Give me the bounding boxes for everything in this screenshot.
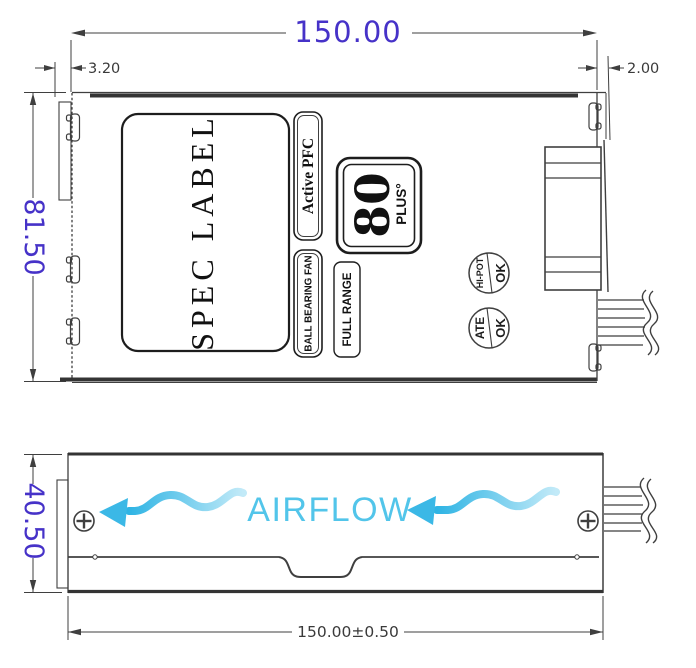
spec-label-text: SPEC LABEL	[184, 113, 220, 351]
wire-bundle-top	[598, 290, 659, 355]
stamp-hipot-ok-text: OK	[493, 263, 508, 283]
dimension-side-height: 40.50	[18, 455, 62, 593]
top-view: 150.00 3.20 2.00	[18, 15, 659, 383]
arrow-right-icon	[586, 65, 597, 71]
seam-nub	[93, 555, 97, 559]
airflow-wave-left	[129, 492, 243, 511]
connector-cover-edge	[604, 140, 608, 292]
active-pfc-text: Active PFC	[300, 138, 317, 214]
arrow-left-icon	[71, 65, 82, 71]
screw-right	[578, 511, 598, 531]
arrow-right-icon	[583, 30, 597, 37]
clip	[67, 256, 80, 283]
dim-right-offset-value: 2.00	[627, 61, 659, 77]
arrow-up-icon	[30, 93, 36, 105]
clip	[589, 103, 601, 130]
psu-outline-drawing: 150.00 3.20 2.00	[0, 0, 696, 668]
arrow-right-icon	[590, 629, 603, 635]
stamp-ate-ok: ATE OK	[469, 308, 509, 348]
airflow-annotation: AIRFLOW	[99, 491, 556, 529]
seam-nub	[575, 555, 579, 559]
dim-top-width-value: 150.00	[294, 15, 401, 49]
side-view: 40.50	[18, 453, 657, 641]
active-pfc-badge: Active PFC	[294, 112, 322, 240]
full-range-badge: FULL RANGE	[334, 262, 360, 357]
arrow-down-icon	[30, 369, 36, 381]
dimension-bottom-width: 150.00±0.50	[68, 596, 603, 641]
chassis-top-view: SPEC LABEL Active PFC BALL BEARING FAN	[59, 93, 659, 383]
arrow-up-icon	[30, 455, 36, 467]
dimension-top-width: 150.00	[71, 15, 597, 92]
drawing-canvas: 150.00 3.20 2.00	[0, 0, 696, 668]
dim-body-depth-value: 81.50	[18, 198, 49, 275]
airflow-wave-right	[437, 491, 556, 510]
full-range-text: FULL RANGE	[342, 272, 354, 346]
stamp-hipot-text: HI-POT	[475, 257, 485, 288]
ball-bearing-fan-badge: BALL BEARING FAN	[294, 250, 322, 357]
arrow-right-icon	[44, 65, 55, 71]
stamp-ate-ok-text: OK	[493, 318, 508, 338]
arrow-left-icon	[68, 629, 81, 635]
arrow-left-icon	[71, 30, 85, 37]
ac-connector-block	[545, 140, 608, 292]
screw-left	[74, 511, 94, 531]
chassis-side-view: AIRFLOW	[57, 453, 657, 593]
airflow-arrowhead-icon	[99, 498, 128, 527]
clip	[67, 114, 80, 141]
handle-recess	[279, 557, 362, 577]
arrow-down-icon	[30, 580, 36, 592]
wire-bundle-side	[604, 478, 657, 543]
dim-side-height-value: 40.50	[18, 482, 49, 559]
side-bracket	[59, 102, 71, 200]
dim-bottom-width-value: 150.00±0.50	[297, 623, 399, 641]
eighty-plus-80-text: 80	[346, 172, 401, 237]
stamp-hipot-ok: HI-POT OK	[469, 253, 509, 293]
dim-left-offset-value: 3.20	[88, 61, 120, 77]
spec-label-badge: SPEC LABEL	[122, 113, 289, 351]
clip	[67, 318, 80, 345]
eighty-plus-logo: 80 PLUS°	[337, 158, 421, 253]
dimension-right-offset: 2.00	[578, 56, 659, 140]
stamp-ate-text: ATE	[475, 317, 487, 339]
arrow-left-icon	[609, 65, 620, 71]
dimension-left-offset: 3.20	[35, 61, 120, 97]
ball-bearing-fan-text: BALL BEARING FAN	[304, 255, 315, 351]
airflow-text: AIRFLOW	[247, 491, 412, 529]
mounting-clips-left	[67, 114, 80, 345]
side-bracket	[57, 480, 68, 588]
clip	[589, 344, 601, 371]
eighty-plus-plus-text: PLUS°	[394, 183, 409, 224]
